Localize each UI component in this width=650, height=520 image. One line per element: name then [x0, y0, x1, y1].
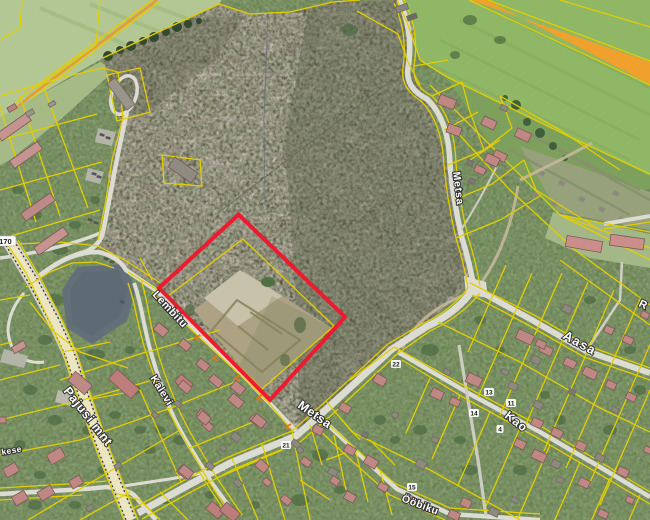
svg-text:14: 14: [470, 411, 478, 418]
svg-text:13: 13: [485, 390, 493, 397]
svg-text:4170: 4170: [0, 237, 12, 246]
svg-text:22: 22: [392, 362, 400, 369]
svg-text:11: 11: [508, 401, 515, 408]
svg-text:21: 21: [282, 443, 290, 450]
svg-text:15: 15: [408, 485, 416, 492]
svg-text:4: 4: [498, 427, 502, 434]
